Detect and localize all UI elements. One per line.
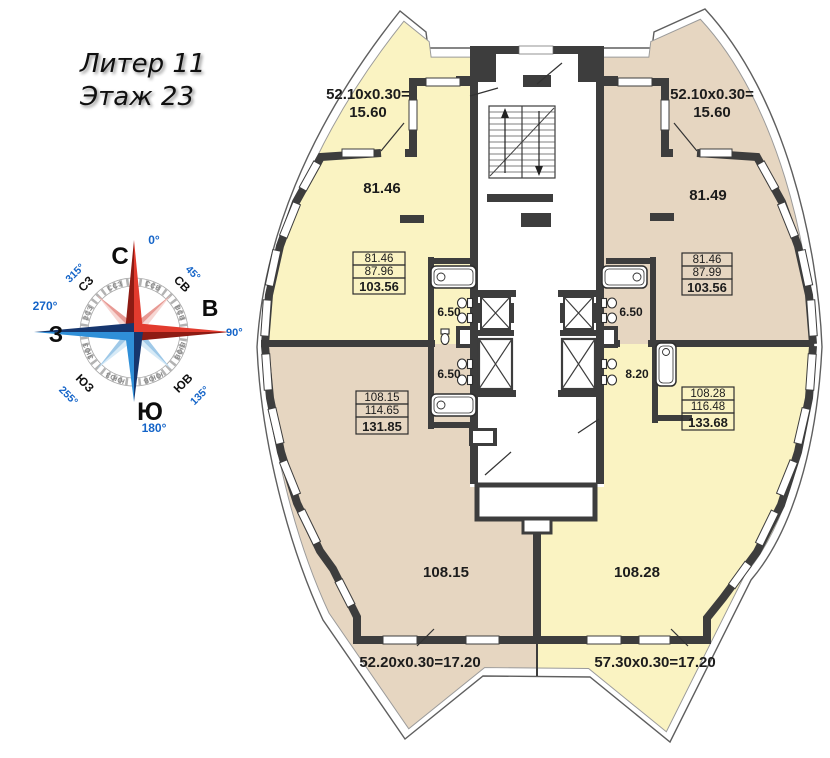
balcony-calc-top-right-line2: 15.60 xyxy=(693,104,731,121)
core-bottom-room xyxy=(477,485,595,519)
bathtub-icon xyxy=(656,343,676,386)
stairs-icon xyxy=(489,106,555,178)
balcony-calc-top-left-line1: 52.10x0.30= xyxy=(326,86,410,103)
core-bottom-stub xyxy=(523,519,551,533)
area-living-bottom-right: 108.28 xyxy=(690,388,725,400)
bath-area-top-right: 6.50 xyxy=(619,305,643,319)
elevator-icon xyxy=(477,297,514,329)
bathtub-icon xyxy=(431,394,476,416)
area-total-top-left: 87.96 xyxy=(365,266,394,278)
area-living-top-left: 81.46 xyxy=(365,253,394,265)
bath-area-bottom-left: 6.50 xyxy=(437,367,461,381)
area-total-bottom-left: 114.65 xyxy=(365,405,399,417)
area-living-top-right: 81.46 xyxy=(693,254,722,266)
bath-area-top-left: 6.50 xyxy=(437,305,461,319)
area-living-bottom-left: 108.15 xyxy=(364,392,399,404)
floor-plan-page: Литер 11 Этаж 23 ССВ ВСВ ВЮВ ЮЮВ ЮЮЗ З xyxy=(0,0,830,758)
area-full-top-left: 103.56 xyxy=(359,279,399,294)
balcony-calc-top-left-line2: 15.60 xyxy=(349,104,387,121)
room-area-bottom-right: 108.28 xyxy=(614,564,660,581)
area-full-top-right: 103.56 xyxy=(687,280,727,295)
balcony-calc-top-right-line1: 52.10x0.30= xyxy=(670,86,754,103)
bathtub-icon xyxy=(602,266,647,288)
area-full-bottom-right: 133.68 xyxy=(688,415,728,430)
area-full-bottom-left: 131.85 xyxy=(362,419,402,434)
floor-plan: 52.10x0.30= 15.60 81.46 52.10x0.30= 15.6… xyxy=(0,0,830,758)
bath-area-bottom-right: 8.20 xyxy=(625,367,649,381)
balcony-calc-bottom-right: 57.30x0.30=17.20 xyxy=(594,654,715,671)
area-total-top-right: 87.99 xyxy=(693,267,722,279)
elevator-icon xyxy=(479,339,512,389)
room-area-top-right: 81.49 xyxy=(689,187,727,204)
room-area-top-left: 81.46 xyxy=(363,180,401,197)
bathtub-icon xyxy=(431,266,476,288)
elevator-icon xyxy=(562,339,595,389)
area-total-bottom-right: 116.48 xyxy=(691,401,725,413)
room-area-bottom-left: 108.15 xyxy=(423,564,469,581)
elevator-icon xyxy=(560,297,597,329)
balcony-calc-bottom-left: 52.20x0.30=17.20 xyxy=(359,654,480,671)
